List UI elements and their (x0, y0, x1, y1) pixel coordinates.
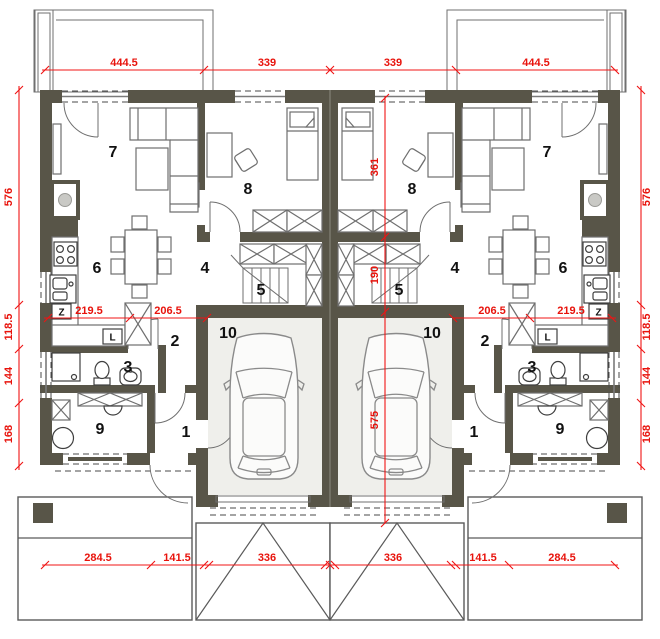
room-garage-left: 10 (219, 325, 237, 342)
dim-vert-3: 575 (369, 411, 381, 429)
dim-bottom-4: 336 (384, 552, 402, 564)
room-hall-left: 4 (201, 260, 210, 277)
dim-top-2: 339 (258, 57, 276, 69)
room-bathroom-left: 3 (124, 359, 133, 376)
room-stairs-left: 5 (257, 282, 266, 299)
dim-inner-left-1: 219.5 (75, 305, 103, 317)
dim-bottom-1: 284.5 (84, 552, 112, 564)
dim-left-4: 168 (3, 425, 15, 443)
room-garage-right: 10 (423, 325, 441, 342)
dim-left-1: 576 (3, 188, 15, 206)
room-living-left: 7 (109, 144, 118, 161)
room-corridor-right: 2 (481, 333, 490, 350)
dim-vert-2: 190 (369, 266, 381, 284)
dim-right-1: 576 (641, 188, 653, 206)
dim-right-4: 168 (641, 425, 653, 443)
dim-inner-right-1: 206.5 (478, 305, 506, 317)
room-kitchen-left: 6 (93, 260, 102, 277)
dim-left-3: 144 (3, 366, 15, 385)
room-entry-right: 1 (470, 424, 479, 441)
dim-bottom-3: 336 (258, 552, 276, 564)
room-bathroom-right: 3 (528, 359, 537, 376)
dim-left-2: 118.5 (3, 314, 15, 341)
floor-plan-canvas: 444.5 339 339 444.5 284.5 141.5 336 336 … (0, 0, 660, 639)
dim-top-1: 444.5 (110, 57, 138, 69)
dim-bottom-5: 141.5 (469, 552, 497, 564)
dim-bottom-6: 284.5 (548, 552, 576, 564)
room-utility-left: 9 (96, 421, 105, 438)
room-stairs-right: 5 (395, 282, 404, 299)
dishwasher-label-left: Z (58, 308, 64, 319)
dim-top-4: 444.5 (522, 57, 550, 69)
room-utility-right: 9 (556, 421, 565, 438)
dim-top-3: 339 (384, 57, 402, 69)
fridge-label-right: L (544, 333, 550, 344)
room-bedroom-right: 8 (408, 181, 417, 198)
room-hall-right: 4 (451, 260, 460, 277)
room-entry-left: 1 (182, 424, 191, 441)
room-bedroom-left: 8 (244, 181, 253, 198)
dim-inner-right-2: 219.5 (557, 305, 585, 317)
room-kitchen-right: 6 (559, 260, 568, 277)
dim-right-2: 118.5 (641, 314, 653, 341)
dim-right-3: 144 (641, 366, 653, 385)
dim-vert-1: 361 (369, 158, 381, 176)
dim-inner-left-2: 206.5 (154, 305, 182, 317)
dim-bottom-2: 141.5 (163, 552, 191, 564)
dishwasher-label-right: Z (595, 308, 601, 319)
fridge-label-left: L (109, 333, 115, 344)
room-corridor-left: 2 (171, 333, 180, 350)
floor-plan: 444.5 339 339 444.5 284.5 141.5 336 336 … (0, 0, 660, 639)
room-living-right: 7 (543, 144, 552, 161)
